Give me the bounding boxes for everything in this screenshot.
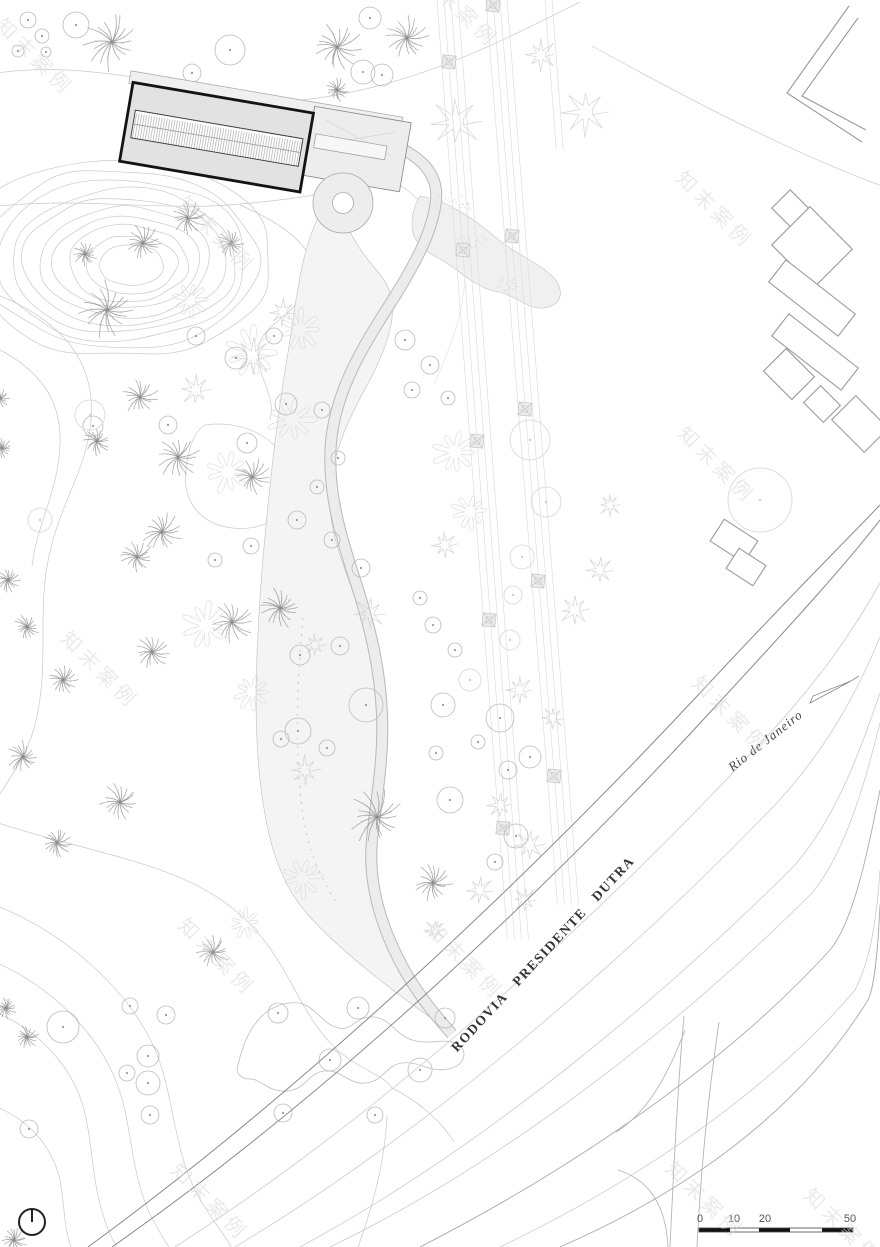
- watermark-text: 知末案例: [671, 167, 758, 254]
- palm-tree: [159, 440, 200, 475]
- flower-tree: [232, 907, 259, 938]
- star-tree: [514, 831, 546, 859]
- star-tree: [586, 556, 613, 581]
- canopy-tree: [243, 538, 259, 554]
- scale-tick-20: 20: [759, 1213, 771, 1225]
- palm-tree: [45, 830, 72, 858]
- canopy-tree: [486, 704, 514, 732]
- palm-tree: [128, 225, 161, 258]
- canopy-tree-light: [510, 545, 534, 569]
- canopy-tree: [187, 327, 205, 345]
- transmission-tower: [486, 0, 500, 12]
- star-tree: [525, 39, 554, 72]
- canopy-tree: [504, 824, 528, 848]
- palm-tree: [386, 15, 429, 56]
- star-tree: [182, 374, 212, 402]
- transmission-tower: [496, 821, 510, 835]
- canopy-tree: [431, 693, 455, 717]
- star-tree: [466, 877, 493, 904]
- star-tree: [562, 94, 609, 138]
- canopy-tree: [448, 643, 462, 657]
- canopy-tree: [367, 1107, 383, 1123]
- flower-tree: [433, 432, 475, 472]
- flower-tree: [208, 452, 248, 494]
- star-tree: [487, 793, 511, 816]
- transmission-lines: [437, 0, 578, 940]
- canopy-tree: [20, 12, 36, 28]
- watermark-text: 知末案例: [173, 914, 260, 1001]
- canopy-tree: [421, 356, 439, 374]
- star-tree: [562, 595, 590, 624]
- canopy-tree: [20, 1120, 38, 1138]
- canopy-tree: [404, 382, 420, 398]
- canopy-tree: [237, 433, 257, 453]
- site-plan-drawing: RODOVIA PRESIDENTE DUTRA Rio de Janeiro …: [0, 0, 880, 1247]
- canopy-tree: [359, 7, 381, 29]
- star-tree: [232, 337, 271, 375]
- palm-tree: [18, 1026, 39, 1048]
- canopy-tree: [159, 416, 177, 434]
- flower-tree: [183, 600, 231, 647]
- canopy-tree: [425, 617, 441, 633]
- canopy-tree: [519, 746, 541, 768]
- canopy-tree: [157, 1006, 175, 1024]
- watermark-text: 知末案例: [173, 192, 260, 279]
- transmission-tower: [482, 613, 496, 627]
- transmission-tower: [442, 55, 456, 69]
- canopy-tree: [437, 787, 463, 813]
- canopy-tree: [274, 1104, 292, 1122]
- canopy-tree: [347, 997, 369, 1019]
- watermark-text: 知末案例: [166, 1159, 253, 1246]
- site-plan-canvas: RODOVIA PRESIDENTE DUTRA Rio de Janeiro …: [0, 0, 880, 1247]
- canopy-tree-light: [504, 586, 522, 604]
- palm-tree: [50, 666, 79, 693]
- transmission-tower: [518, 402, 532, 416]
- palm-tree: [120, 542, 151, 572]
- palm-tree: [416, 864, 454, 901]
- canopy-tree: [47, 1011, 79, 1043]
- highway-name-label: RODOVIA PRESIDENTE DUTRA: [448, 853, 637, 1055]
- palm-tree: [78, 280, 133, 338]
- canopy-tree: [183, 64, 201, 82]
- palm-tree: [15, 615, 39, 638]
- canopy-tree: [395, 330, 415, 350]
- palm-tree: [137, 637, 170, 668]
- circular-plaza: [313, 173, 373, 233]
- canopy-tree: [137, 1045, 159, 1067]
- canopy-tree-light: [500, 630, 520, 650]
- canopy-tree: [35, 29, 49, 43]
- palm-tree: [83, 14, 133, 71]
- canopy-tree-light: [28, 508, 52, 532]
- canopy-tree-light: [510, 420, 550, 460]
- canopy-tree: [119, 1065, 135, 1081]
- canopy-tree-light: [459, 669, 481, 691]
- palm-tree: [83, 429, 108, 456]
- canopy-tree: [141, 1106, 159, 1124]
- palm-tree: [143, 513, 181, 548]
- transmission-tower: [470, 434, 484, 448]
- transmission-tower: [505, 229, 519, 243]
- canopy-tree-light: [75, 400, 105, 430]
- lawn-corridor: [256, 211, 442, 1026]
- canopy-tree: [215, 35, 245, 65]
- canopy-tree: [429, 746, 443, 760]
- palm-tree: [8, 740, 36, 771]
- canopy-tree: [266, 328, 282, 344]
- watermark-text: 知末案例: [687, 672, 774, 759]
- star-tree: [601, 494, 620, 517]
- watermark-text: 知末案例: [673, 422, 760, 509]
- palm-tree: [99, 783, 136, 819]
- canopy-tree: [471, 735, 485, 749]
- palm-tree: [316, 24, 362, 69]
- star-tree: [431, 99, 482, 142]
- transmission-tower: [547, 769, 561, 783]
- canopy-tree: [122, 998, 138, 1014]
- transmission-tower: [531, 574, 545, 588]
- watermark-text: 知末案例: [799, 1184, 880, 1247]
- palm-tree: [212, 603, 251, 643]
- star-tree: [542, 708, 563, 729]
- palm-tree: [73, 242, 96, 266]
- palm-tree: [327, 78, 349, 102]
- canopy-tree: [136, 1071, 160, 1095]
- direction-arrow-icon: [810, 681, 851, 703]
- canopy-tree: [413, 591, 427, 605]
- canopy-tree: [408, 1058, 432, 1082]
- canopy-tree: [487, 854, 503, 870]
- palm-tree: [123, 380, 158, 411]
- vegetation-layer: [0, 7, 792, 1247]
- scale-tick-0: 0: [697, 1213, 703, 1225]
- flower-tree: [451, 496, 487, 531]
- canopy-tree: [441, 391, 455, 405]
- canopy-tree: [63, 12, 89, 38]
- watermark-text: 知末案例: [0, 14, 78, 101]
- north-arrow: [19, 1209, 45, 1235]
- palm-tree: [0, 389, 10, 407]
- palm-tree: [0, 438, 10, 458]
- palm-tree: [0, 570, 21, 592]
- canopy-tree: [208, 553, 222, 567]
- palm-tree: [236, 459, 269, 495]
- palm-tree: [0, 997, 16, 1019]
- star-tree: [431, 532, 458, 558]
